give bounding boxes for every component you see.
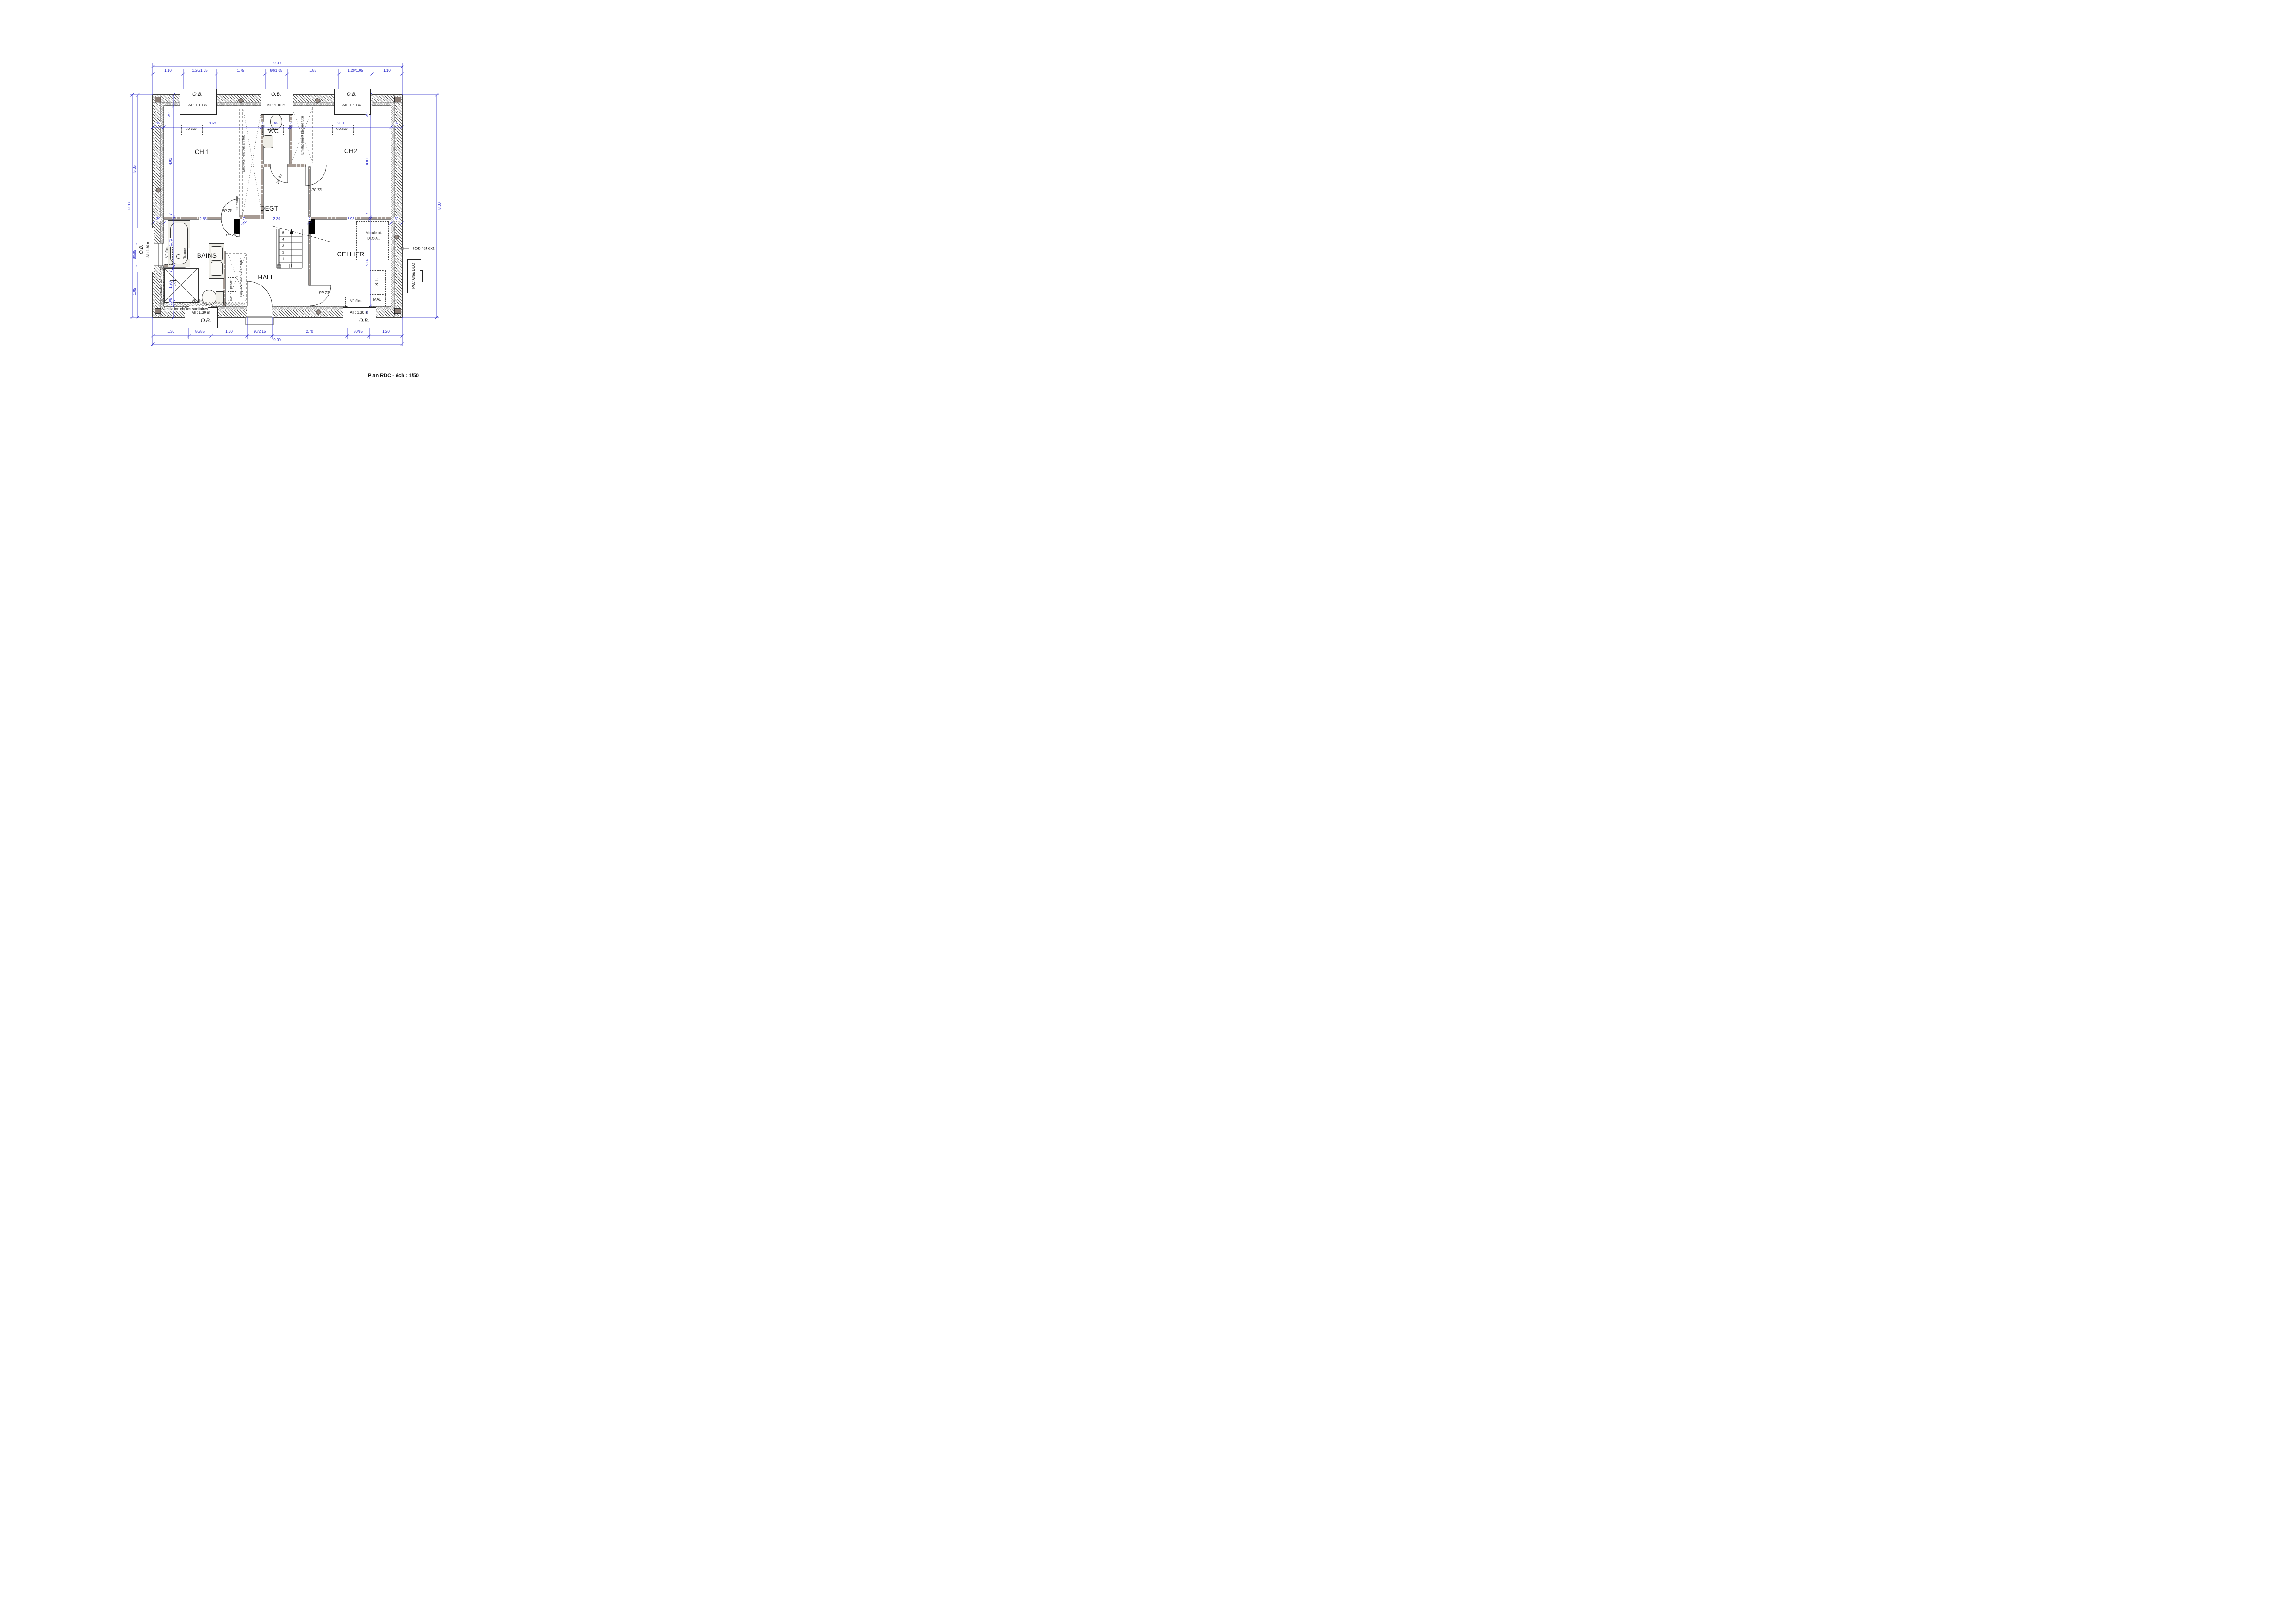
dim-int-right: 4.01 xyxy=(366,157,369,166)
window-label-allege: All : 1.30 m xyxy=(350,311,368,315)
dim-right-total: 8.00 xyxy=(438,202,441,210)
door-arc-ch2 xyxy=(306,165,326,186)
seche-linge-label: S.L. xyxy=(375,278,380,286)
dim-int-left: 7 xyxy=(169,270,173,273)
door-arc-cellier xyxy=(310,285,331,306)
vr-elec-label: VR élec. xyxy=(267,128,279,131)
dim-int-left: 1.20 xyxy=(169,281,173,289)
plan-linework xyxy=(0,0,574,406)
dim-top: 1.20/1.05 xyxy=(347,69,363,73)
dim-int-right: 39 xyxy=(366,112,369,118)
dim-int-top: 39 xyxy=(394,122,399,125)
dim-int-right: 7 xyxy=(366,212,369,215)
window-label-ob: O.B. xyxy=(359,318,369,324)
door-swings xyxy=(221,165,331,306)
dim-top: 1.10 xyxy=(164,69,172,73)
dim-int-left: 7 xyxy=(169,213,173,216)
dim-int-mid: 2.85 xyxy=(199,217,207,221)
door-label-pp73: PP 73 xyxy=(222,209,232,213)
vr-elec-label: VR élec. xyxy=(165,246,168,258)
plan-title: Plan RDC - éch : 1/50 xyxy=(368,373,419,379)
dim-bottom: 80/85 xyxy=(353,330,363,334)
ventilation-fosse-label: Ventilation de fosse xyxy=(160,271,163,299)
dim-left: 80/85 xyxy=(133,249,137,260)
vr-elec-label: VR élec. xyxy=(350,299,362,303)
dim-top-total: 9.00 xyxy=(273,62,281,65)
dim-top: 1.20/1.05 xyxy=(192,69,208,73)
dim-int-left: 39 xyxy=(168,112,171,118)
window-label-ob: O.B. xyxy=(139,245,144,254)
dim-int-mid: 7 xyxy=(308,217,311,221)
dim-bottom: 1.30 xyxy=(167,330,175,334)
dim-int-mid: 2.30 xyxy=(273,217,281,221)
room-label-ch2: CH2 xyxy=(344,148,357,155)
room-label-hall: HALL xyxy=(258,274,274,281)
room-label-ch1: CH:1 xyxy=(195,149,210,155)
dim-int-top: 39 xyxy=(156,122,161,125)
dim-bottom: 90/2.15 xyxy=(253,330,267,334)
vr-elec-label: VR élec. xyxy=(192,299,204,303)
stair-step-number: 1 xyxy=(282,257,284,260)
dim-int-mid: 39 xyxy=(156,217,161,221)
stair-step-number: 3 xyxy=(282,244,284,248)
window-label-ob: O.B. xyxy=(201,318,211,324)
robinet-symbol xyxy=(399,247,409,250)
pac-label: PAC Alféa DUO xyxy=(412,263,416,289)
dim-int-top: 7 xyxy=(261,122,264,125)
stair-step-number: 4 xyxy=(282,238,284,241)
floor-plan-canvas: CH:1 WC CH2 DEGT BAINS HALL CELLIER 9.00… xyxy=(0,0,574,406)
door-label-pp73: PP 73 xyxy=(319,291,329,295)
dim-int-top: 3.52 xyxy=(208,122,217,125)
dim-int-top: 95 xyxy=(274,122,279,125)
dim-bottom: 80/85 xyxy=(195,330,205,334)
dim-int-left: 4.01 xyxy=(169,157,173,166)
dim-bottom: 1.30 xyxy=(225,330,233,334)
dim-int-mid: 2.93 xyxy=(347,217,355,221)
dim-int-top: 7 xyxy=(289,122,292,125)
stair-step-number: 5 xyxy=(282,231,284,235)
room-label-degt: DEGT xyxy=(260,205,278,212)
trappe-label: Trappe xyxy=(183,248,186,259)
dim-bottom-total: 9.00 xyxy=(273,338,281,342)
window-label-allege: All : 1.30 m xyxy=(192,311,210,315)
stairs xyxy=(272,226,331,268)
window-label-ob: O.B. xyxy=(192,92,203,98)
dim-bottom: 2.70 xyxy=(305,330,314,334)
vr-elec-label: VR élec. xyxy=(336,128,348,131)
dim-left-total: 8.00 xyxy=(128,202,131,210)
placard-label: Emplacement placard futur xyxy=(240,258,243,297)
window-label-allege: All : 1.10 m xyxy=(188,104,207,107)
window-label-allege: All : 1.10 m xyxy=(267,104,285,107)
window-label-ob: O.B. xyxy=(271,92,281,98)
stair-cut-line xyxy=(272,226,331,242)
room-label-cellier: CELLIER xyxy=(337,251,364,258)
dim-top: 1.85 xyxy=(309,69,317,73)
robinet-ext-label: Robinet ext. xyxy=(413,246,435,250)
ventilation-chutes-label: Ventilation chûtes sanitaires xyxy=(162,307,208,311)
dim-int-mid: 39 xyxy=(394,217,399,221)
dim-left: 5.35 xyxy=(133,165,137,173)
dim-int-left: 1.71 xyxy=(169,238,173,247)
non-visible-label: non visible xyxy=(236,196,239,211)
dim-bottom: 1.20 xyxy=(382,330,390,334)
telecom-label: Telecom xyxy=(230,279,233,289)
placard-label: Emplacement placard futur xyxy=(242,133,245,172)
dim-int-top: 3.61 xyxy=(337,122,345,125)
machine-a-laver-label: MAL xyxy=(373,298,381,302)
module-int-label-2: DUO A.I. xyxy=(367,237,380,240)
dim-top: 80/1.05 xyxy=(270,69,283,73)
door-label-pp73: PP 73 xyxy=(311,188,322,192)
window-label-allege: All : 1.30 m xyxy=(146,241,149,257)
dim-left: 1.85 xyxy=(133,287,137,296)
stair-step-number: 2 xyxy=(282,251,284,254)
dim-top: 1.10 xyxy=(383,69,391,73)
door-arc-entrance xyxy=(247,281,272,306)
dim-int-right: 3.14 xyxy=(366,259,369,267)
placard-label: Emplacement placard futur xyxy=(301,116,304,155)
edf-label: EDF xyxy=(230,296,233,301)
dim-top: 1.75 xyxy=(236,69,245,73)
window-label-ob: O.B. xyxy=(347,92,357,98)
dim-int-left: 10/6 xyxy=(169,297,173,306)
room-label-bains: BAINS xyxy=(197,253,217,259)
stair-direction-arrow xyxy=(290,229,293,234)
door-label-pp73: PP 73 xyxy=(226,234,236,237)
dim-int-mid: 7 xyxy=(242,217,245,221)
module-int-label-1: Module int. xyxy=(366,231,382,235)
window-label-allege: All : 1.10 m xyxy=(342,104,361,107)
vr-elec-label: VR élec. xyxy=(186,128,198,131)
